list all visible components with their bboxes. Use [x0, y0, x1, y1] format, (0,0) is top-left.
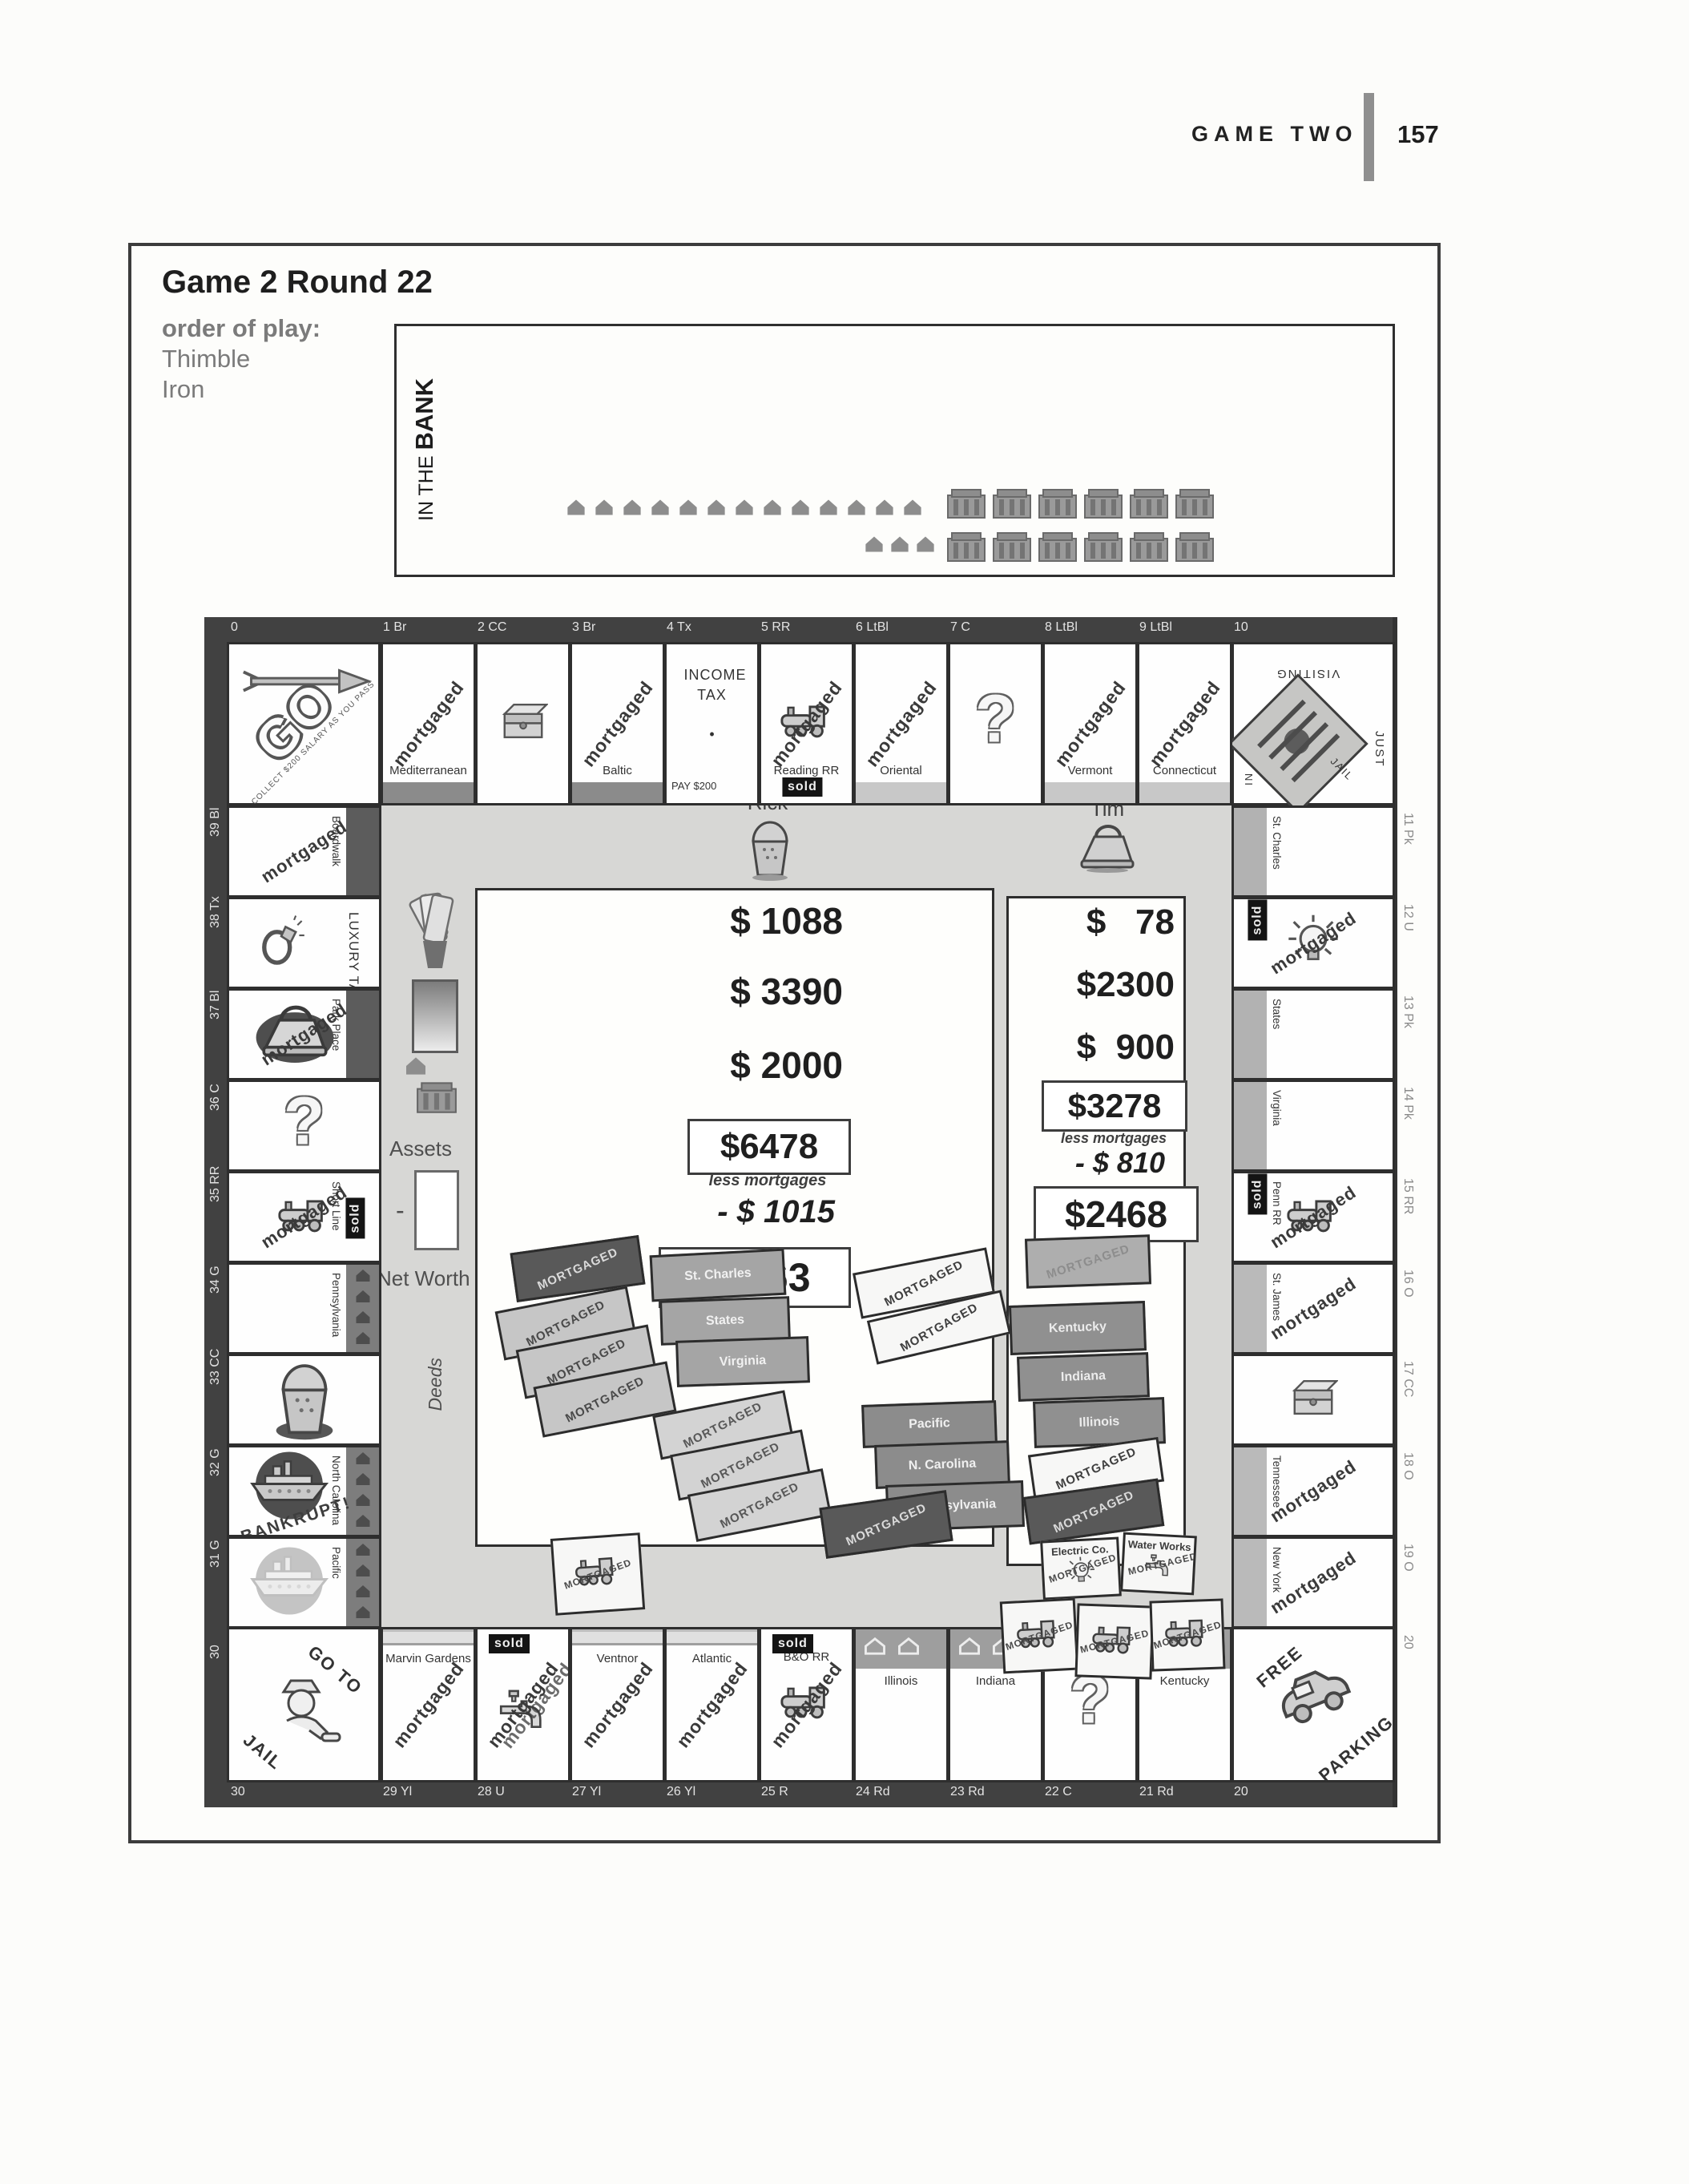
house-icon: [354, 1331, 372, 1349]
bank-house-icon: [594, 499, 615, 520]
space-tennessee: Tennesseemortgaged: [1231, 1445, 1395, 1537]
bank-hotel-icon: [1082, 529, 1124, 567]
space-name: Reading RR: [761, 764, 852, 777]
space-illinois: Illinois: [853, 1627, 949, 1782]
house-icon: [354, 1310, 372, 1328]
space-name: Tennessee: [1271, 1455, 1283, 1508]
space-connecticut: Connecticutmortgaged: [1137, 642, 1232, 805]
page-number: 157: [1397, 120, 1439, 149]
bottom-ruler-label: 27 Yl: [572, 1785, 601, 1799]
bottom-ruler-label: 26 Yl: [667, 1785, 695, 1799]
house-icon: [354, 1564, 372, 1581]
player2-less-mortgages-value: - $ 810: [1042, 1146, 1165, 1180]
color-bar: [1139, 782, 1231, 804]
space-name: Indiana: [950, 1674, 1041, 1688]
space-name: Baltic: [572, 764, 663, 777]
bottom-ruler-label: 28 U: [478, 1785, 505, 1799]
bottom-ruler-label: 22 C: [1045, 1785, 1072, 1799]
bank-hotel-icon: [945, 486, 987, 523]
house-icon: [354, 1514, 372, 1532]
tim-deed-mortgaged: MORTGAGED: [1025, 1234, 1151, 1288]
space-faucet: mortgagedmortgagedsold: [475, 1627, 570, 1782]
bank-house-icon: [762, 499, 783, 520]
space-atlantic: Atlanticmortgaged: [664, 1627, 760, 1782]
space-name: Oriental: [856, 764, 946, 777]
sold-badge: sold: [782, 777, 823, 797]
deed-label: Illinois: [1078, 1415, 1119, 1431]
bottom-ruler-label: 25 R: [761, 1785, 788, 1799]
top-ruler-label: 10: [1234, 620, 1248, 635]
bank-house-icon: [650, 499, 671, 520]
space-new-york: New Yorkmortgaged: [1231, 1536, 1395, 1629]
bank-house-icon: [846, 499, 867, 520]
space-name: Connecticut: [1139, 764, 1230, 777]
net-worth-box-icon: [414, 1170, 459, 1250]
right-ruler-label: 16 O: [1401, 1270, 1415, 1298]
top-ruler-label: 3 Br: [572, 620, 595, 635]
top-ruler-label: 9 LtBl: [1139, 620, 1172, 635]
space-name: States: [1271, 999, 1283, 1029]
color-bar: [855, 1629, 947, 1669]
bottom-ruler-label: 21 Rd: [1139, 1785, 1174, 1799]
mortgaged-label: mortgaged: [570, 1627, 665, 1782]
left-ruler-label: 37 Bl: [208, 987, 223, 1019]
right-ruler-label: 18 O: [1401, 1452, 1415, 1480]
in-the-bank-label: IN THE BANK: [410, 378, 439, 521]
color-bar: [346, 1447, 380, 1536]
tim-deed-mortgaged: MORTGAGED: [1074, 1603, 1154, 1679]
tim-deed-electric-co-: Electric Co.MORTGAGED: [1040, 1536, 1122, 1600]
sold-badge: sold: [1248, 900, 1267, 941]
house-icon: [897, 1637, 921, 1660]
income-tax-label: INCOME TAX: [684, 665, 740, 705]
top-ruler-label: 7 C: [950, 620, 970, 635]
jail-cell-icon: [1227, 673, 1368, 813]
sold-badge: sold: [346, 1197, 365, 1238]
space-name: Pennsylvania: [330, 1273, 342, 1337]
electric-company-bulb-icon: [1284, 911, 1343, 975]
rick-deed-mortgaged: MORTGAGED: [550, 1532, 645, 1616]
header-divider-bar: [1364, 93, 1374, 181]
space-vermont: Vermontmortgaged: [1042, 642, 1138, 805]
player2-assets-total: $3278: [1042, 1080, 1187, 1132]
space-name: Boardwalk: [330, 816, 342, 866]
order-player-1: Thimble: [162, 345, 250, 373]
jail-visiting-label: VISITING: [1276, 667, 1340, 680]
luxury-tax-ring-icon: [256, 914, 304, 971]
space-name: Penn RR: [1271, 1181, 1283, 1225]
space-luxury-tax: LUXURY TAX: [227, 897, 381, 989]
top-ruler-label: 2 CC: [478, 620, 506, 635]
iron-token-icon: [1077, 824, 1138, 878]
bank-hotel-icon: [1128, 486, 1170, 523]
space-st-james: St. Jamesmortgaged: [1231, 1262, 1395, 1354]
house-icon: [354, 1605, 372, 1623]
space-thimble: [227, 1354, 381, 1446]
color-bar: [855, 782, 947, 804]
house-icon: [354, 1269, 372, 1286]
space-virginia: Virginia: [1231, 1080, 1395, 1172]
house-icon: [354, 1585, 372, 1602]
house-icon: [404, 1056, 428, 1080]
bottom-ruler-label: 29 Yl: [383, 1785, 412, 1799]
left-ruler-label: 31 G: [208, 1536, 223, 1568]
player1-less-mortgages-value: - $ 1015: [609, 1194, 835, 1230]
space-states: States: [1231, 988, 1395, 1080]
space-reading-rr: Reading RRmortgagedsold: [759, 642, 854, 805]
house-icon: [863, 1637, 887, 1660]
player2-cash-line: $ 78: [1032, 902, 1175, 943]
bank-label-bank: BANK: [410, 378, 438, 450]
bottom-ruler-label: 20: [1234, 1785, 1248, 1799]
hotel-icon: [415, 1079, 458, 1118]
go-to-jail-corner: GO TO JAIL: [227, 1627, 381, 1782]
right-ruler-label: 14 Pk: [1401, 1087, 1415, 1120]
luxury-tax-label: LUXURY TAX: [345, 912, 361, 989]
color-bar: [1233, 1447, 1267, 1536]
player2-cash-line: $2300: [1032, 965, 1175, 1005]
left-ruler-label: 30: [208, 1627, 223, 1659]
income-tax-dot: •: [667, 726, 757, 743]
thimble-token-on-board-icon: [271, 1355, 338, 1444]
player1-assets-total: $6478: [687, 1119, 851, 1175]
player1-cash-line: $ 1088: [561, 899, 843, 943]
deed-label: St. Charles: [684, 1266, 752, 1284]
battleship-ghost-icon: [238, 1544, 341, 1621]
rick-deed-st-charles: St. Charles: [650, 1249, 787, 1302]
tim-deed-mortgaged: MORTGAGED: [1149, 1598, 1225, 1671]
house-icon: [354, 1290, 372, 1307]
mortgaged-label: mortgaged: [381, 1627, 476, 1782]
sold-badge: sold: [489, 1634, 530, 1653]
tim-deed-kentucky: Kentucky: [1009, 1301, 1147, 1355]
deed-label: MORTGAGED: [844, 1500, 929, 1548]
bottom-ruler-label: 24 Rd: [856, 1785, 890, 1799]
mortgaged-label: mortgaged: [570, 642, 665, 805]
space-park-place: Park Placemortgaged: [227, 988, 381, 1080]
space-pacific: Pacific: [227, 1536, 381, 1629]
bank-house-icon: [566, 499, 587, 520]
space-name: Kentucky: [1139, 1674, 1230, 1688]
order-player-2: Iron: [162, 375, 204, 404]
deed-label: States: [706, 1313, 745, 1329]
bank-house-icon: [818, 499, 839, 520]
tim-deed-water-works: Water WorksMORTGAGED: [1120, 1532, 1197, 1596]
color-bar: [346, 1264, 380, 1353]
space-oriental: Orientalmortgaged: [853, 642, 949, 805]
bank-hotel-icon: [945, 529, 987, 567]
mortgaged-label: mortgaged: [853, 642, 949, 805]
color-bar: [571, 782, 663, 804]
mortgaged-label: mortgaged: [381, 642, 476, 805]
order-of-play-label: order of play:: [162, 314, 320, 343]
color-bar: [1233, 1538, 1267, 1627]
assets-label: Assets: [389, 1136, 452, 1161]
bank-house-icon: [622, 499, 643, 520]
bank-house-icon: [790, 499, 811, 520]
jail-in-label: IN: [1243, 772, 1255, 785]
player2-cash-line: $ 900: [1032, 1027, 1175, 1068]
top-ruler-label: 5 RR: [761, 620, 790, 635]
bank-hotel-icon: [991, 529, 1033, 567]
top-ruler-label: 8 LtBl: [1045, 620, 1078, 635]
house-icon: [957, 1637, 982, 1660]
color-bar: [382, 1629, 474, 1645]
deeds-label: Deeds: [425, 1358, 446, 1411]
bank-house-icon: [902, 499, 923, 520]
bottom-ruler-label: 23 Rd: [950, 1785, 985, 1799]
sold-badge: sold: [772, 1634, 813, 1653]
deed-label: N. Carolina: [908, 1456, 976, 1473]
right-ruler-label: 15 RR: [1401, 1178, 1415, 1214]
left-ruler-label: 33 CC: [208, 1353, 223, 1385]
space-ventnor: Ventnormortgaged: [570, 1627, 665, 1782]
sold-badge: sold: [1248, 1174, 1267, 1215]
space-question: ?: [948, 642, 1043, 805]
net-worth-label: Net Worth: [377, 1266, 470, 1291]
jail-just-label: JUST: [1373, 731, 1386, 768]
thimble-token-icon: [745, 814, 795, 886]
top-ruler-label: 4 Tx: [667, 620, 691, 635]
water-works-faucet-icon: [498, 1689, 549, 1738]
space-name: Vermont: [1045, 764, 1135, 777]
space-penn-rr: Penn RRmortgagedsold: [1231, 1171, 1395, 1263]
mortgaged-label: mortgaged: [1042, 642, 1138, 805]
space-mediterranean: Mediterraneanmortgaged: [381, 642, 476, 805]
left-ruler-label: 34 G: [208, 1262, 223, 1294]
color-bar: [1233, 807, 1267, 896]
left-ruler-label: 39 Bl: [208, 805, 223, 837]
space-name: New York: [1271, 1547, 1283, 1593]
deed-label: MORTGAGED: [1051, 1488, 1136, 1536]
right-ruler-label: 19 O: [1401, 1544, 1415, 1572]
bank-hotel-icon: [1082, 486, 1124, 523]
chance-question-icon: ?: [950, 680, 1041, 758]
house-icon: [354, 1451, 372, 1469]
book-page: GAME TWO 157 Game 2 Round 22 order of pl…: [0, 0, 1689, 2184]
space-chest: [1231, 1354, 1395, 1446]
mortgaged-label: mortgaged: [1137, 642, 1232, 805]
space-pennsylvania: Pennsylvania: [227, 1262, 381, 1354]
bank-hotel-icon: [1174, 486, 1215, 523]
player1-cash-line: $ 2000: [561, 1044, 843, 1087]
color-bar: [666, 1629, 758, 1645]
tim-deed-indiana: Indiana: [1017, 1352, 1150, 1402]
space-chest: [475, 642, 570, 805]
bank-house-icon: [706, 499, 727, 520]
bank-house-icon: [678, 499, 699, 520]
rick-deed-virginia: Virginia: [675, 1336, 810, 1387]
bank-hotel-icon: [1174, 529, 1215, 567]
bank-hotel-icon: [991, 486, 1033, 523]
left-ruler-label: 36 C: [208, 1079, 223, 1111]
left-ruler-label: 38 Tx: [208, 896, 223, 928]
space-income-tax: INCOME TAX•PAY $200: [664, 642, 760, 805]
deed-label: Virginia: [720, 1354, 767, 1370]
deed-label: Pacific: [909, 1416, 950, 1432]
bank-house-icon: [734, 499, 755, 520]
house-icon: [354, 1543, 372, 1560]
railroad-train-icon: [779, 1681, 835, 1723]
bank-label-inthe: IN THE: [415, 456, 437, 522]
deed-utility-name: Water Works: [1125, 1538, 1195, 1553]
bank-hotel-icon: [1128, 529, 1170, 567]
color-bar: [1233, 1264, 1267, 1353]
color-bar: [346, 990, 380, 1079]
left-ruler-label: 35 RR: [208, 1170, 223, 1202]
left-ruler-label: 32 G: [208, 1444, 223, 1476]
space-north-carolina: North CarolinaBANKRUPT!: [227, 1445, 381, 1537]
right-ruler-label: 17 CC: [1401, 1361, 1415, 1397]
deed-label: Indiana: [1061, 1369, 1107, 1385]
space-st-charles: St. Charles: [1231, 805, 1395, 898]
bank-hotel-icon: [1037, 486, 1078, 523]
deed-label: MORTGAGED: [718, 1480, 801, 1531]
player1-less-mortgages-label: less mortgages: [657, 1172, 878, 1190]
player2-less-mortgages-label: less mortgages: [1024, 1130, 1203, 1147]
go-corner: GO COLLECT $200 SALARY AS YOU PASS: [227, 642, 381, 805]
space-marvin-gardens: Marvin Gardensmortgaged: [381, 1627, 476, 1782]
community-chest-icon: [1288, 1377, 1338, 1423]
color-bar: [1233, 990, 1267, 1079]
house-icon: [354, 1493, 372, 1511]
color-bar: [571, 1629, 663, 1645]
minus-sign: -: [396, 1196, 405, 1225]
space-name: Virginia: [1271, 1090, 1283, 1126]
color-bar: [346, 807, 380, 896]
top-ruler-label: 6 LtBl: [856, 620, 889, 635]
color-bar: [1044, 782, 1136, 804]
bank-house-icon: [874, 499, 895, 520]
deed-label: MORTGAGED: [535, 1245, 620, 1293]
space-name: Mediterranean: [383, 764, 474, 777]
chance-question-icon: ?: [229, 1082, 379, 1160]
top-ruler-label: 1 Br: [383, 620, 406, 635]
space-bulb: mortgagedsold: [1231, 897, 1395, 989]
space-name: Ventnor: [572, 1652, 663, 1665]
community-chest-icon: [498, 701, 548, 747]
right-ruler-label: 20: [1401, 1635, 1415, 1649]
cash-fan-icon: [394, 891, 465, 983]
space-short-line: Short Linemortgagedsold: [227, 1171, 381, 1263]
space-name: St. James: [1271, 1273, 1283, 1321]
top-ruler-label: 0: [231, 620, 238, 635]
railroad-train-icon: [779, 700, 835, 742]
right-ruler-label: 13 Pk: [1401, 995, 1415, 1028]
tim-deed-mortgaged: MORTGAGED: [1000, 1598, 1079, 1674]
space-baltic: Balticmortgaged: [570, 642, 665, 805]
right-ruler-label: 11 Pk: [1401, 813, 1415, 845]
bank-hotel-icon: [1037, 529, 1078, 567]
mortgaged-label: mortgaged: [664, 1627, 760, 1782]
figure-title: Game 2 Round 22: [162, 264, 433, 301]
space-name: Illinois: [856, 1674, 946, 1688]
deed-stack-icon: [412, 979, 458, 1053]
railroad-train-icon: [1285, 1194, 1341, 1237]
color-bar: [1233, 1081, 1267, 1170]
bottom-ruler-label: 30: [231, 1785, 245, 1799]
space-name: Marvin Gardens: [383, 1652, 474, 1665]
space-name: St. Charles: [1271, 816, 1283, 870]
space-question: ?: [227, 1080, 381, 1172]
jail-corner: VISITING JUST JAIL IN: [1231, 642, 1395, 805]
player2-net-worth-value: $2468: [1034, 1186, 1199, 1242]
bank-house-icon: [889, 535, 910, 557]
space-boardwalk: Boardwalkmortgaged: [227, 805, 381, 898]
iron-token-on-board-icon: [253, 998, 337, 1071]
bank-house-icon: [915, 535, 936, 557]
bank-house-icon: [864, 535, 885, 557]
income-tax-pay: PAY $200: [671, 780, 716, 792]
railroad-train-icon: [276, 1194, 333, 1237]
deed-label: Kentucky: [1049, 1320, 1107, 1337]
chapter-title: GAME TWO: [1191, 122, 1357, 147]
space-b-o-rr: B&O RRmortgagedsold: [759, 1627, 854, 1782]
right-ruler-label: 12 U: [1401, 904, 1415, 931]
free-parking-corner: FREE PARKING: [1231, 1627, 1395, 1782]
space-name: Atlantic: [667, 1652, 757, 1665]
deed-label: MORTGAGED: [1045, 1241, 1131, 1282]
player1-cash-line: $ 3390: [561, 970, 843, 1013]
deed-label: MORTGAGED: [563, 1374, 647, 1425]
color-bar: [382, 782, 474, 804]
color-bar: [346, 1538, 380, 1627]
house-icon: [354, 1472, 372, 1490]
